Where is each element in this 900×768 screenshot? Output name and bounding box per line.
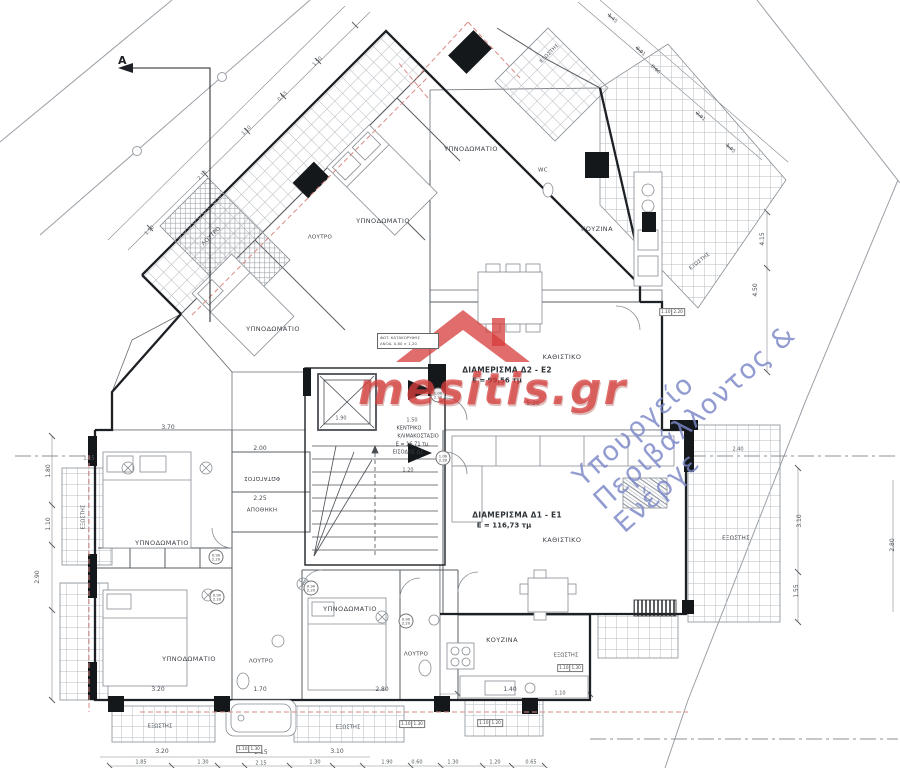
annotation-line-2: ΑΝΟΔ. 0,80 × 1,20 — [380, 341, 436, 347]
section-marker-label: A — [118, 54, 127, 67]
floor-plan-canvas: ΥΠΝΟΔΩΜΑΤΙΟΥΠΝΟΔΩΜΑΤΙΟΥΠΝΟΔΩΜΑΤΙΟΛΟΥΤΡΟΛ… — [0, 0, 900, 768]
floor-plan-drawing — [0, 0, 900, 768]
annotation-box: ΦΩΤ. ΚΑΤΑΚΟΡΥΦΗΣ ΑΝΟΔ. 0,80 × 1,20 — [377, 333, 439, 349]
